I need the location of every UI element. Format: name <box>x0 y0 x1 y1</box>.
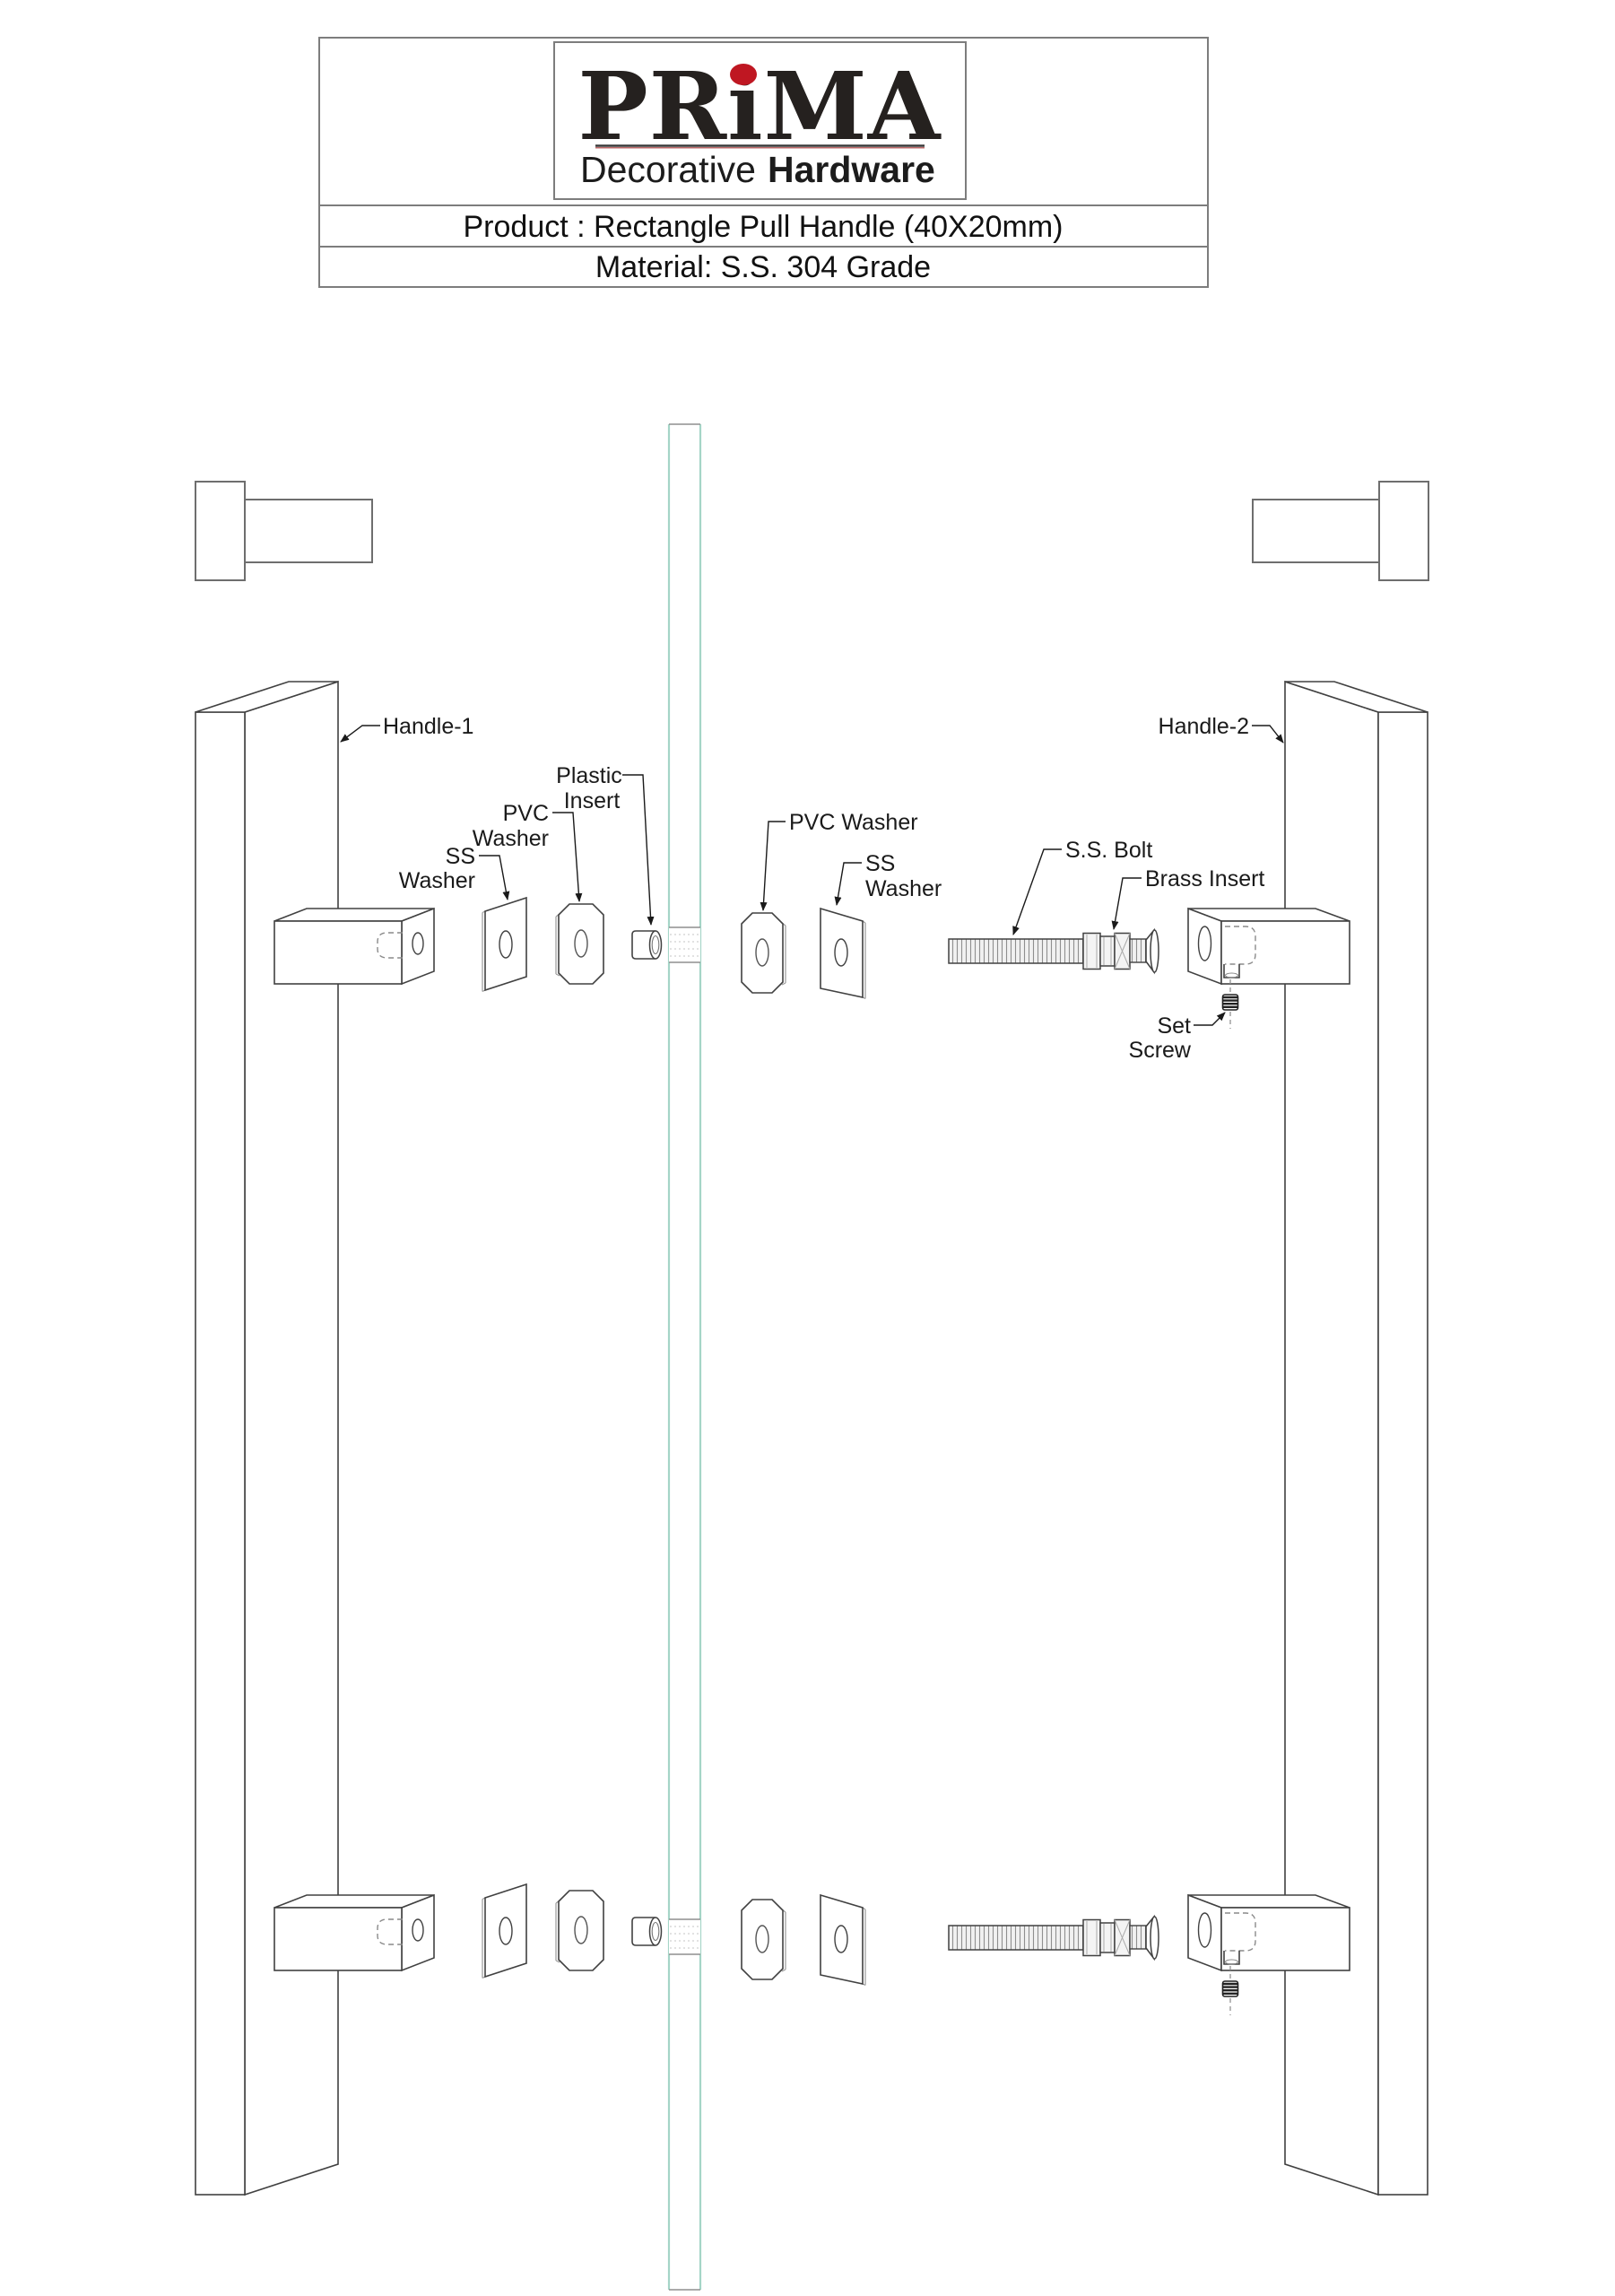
callout-pvc-washer-right: PVC Washer <box>789 810 918 835</box>
prima-logo: PRiMA Decorative Hardware <box>578 51 942 190</box>
brand-dot-icon <box>730 64 757 85</box>
callout-plastic-insert: Insert <box>564 788 621 813</box>
callout-pvc-washer-left: PVC <box>503 801 549 826</box>
glass-panel <box>669 424 700 2290</box>
brand-tagline-bold: Hardware <box>768 149 935 190</box>
title-block: PRiMA Decorative Hardware Product : Rect… <box>319 38 1208 287</box>
callout-ss-washer-left: Washer <box>399 868 475 893</box>
material-line: Material: S.S. 304 Grade <box>595 250 931 284</box>
callout-brass-insert: Brass Insert <box>1145 866 1264 891</box>
callout-ss-washer-right: Washer <box>865 876 942 901</box>
fastener-row-top <box>274 898 1350 1029</box>
callout-pvc-washer-left: Washer <box>473 826 549 851</box>
callout-set-screw: Screw <box>1129 1038 1192 1063</box>
brand-tagline-regular: Decorative <box>580 149 756 190</box>
handle-2-plan-view <box>1253 482 1428 580</box>
callout-ss-bolt: S.S. Bolt <box>1065 838 1152 863</box>
callout-handle-1: Handle-1 <box>383 714 473 739</box>
product-line: Product : Rectangle Pull Handle (40X20mm… <box>464 210 1064 244</box>
exploded-assembly-drawing: Handle-1 Handle-2 Plastic Insert PVC Was… <box>0 0 1615 2296</box>
fastener-row-bottom <box>274 1884 1350 2015</box>
callouts: Handle-1 Handle-2 Plastic Insert PVC Was… <box>341 714 1283 1063</box>
handle-1-plan-view <box>195 482 372 580</box>
callout-plastic-insert: Plastic <box>556 763 622 788</box>
callout-ss-washer-left: SS <box>446 844 475 869</box>
callout-handle-2: Handle-2 <box>1159 714 1249 739</box>
callout-set-screw: Set <box>1157 1013 1191 1039</box>
callout-ss-washer-right: SS <box>865 851 895 876</box>
